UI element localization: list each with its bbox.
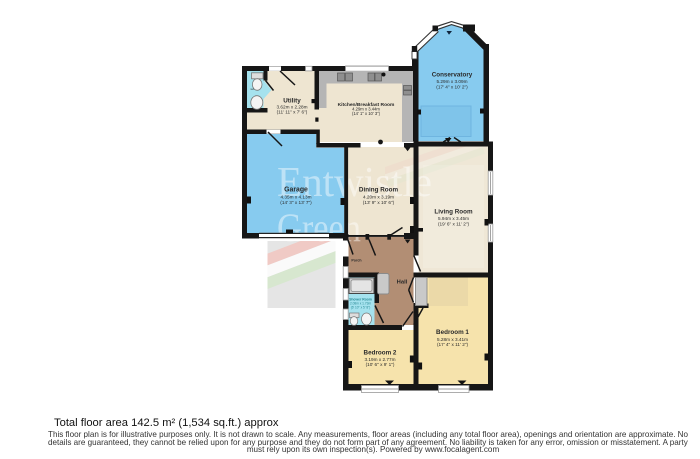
- svg-text:(6' 10" x 5' 8"): (6' 10" x 5' 8"): [351, 306, 371, 310]
- svg-text:Conservatory: Conservatory: [432, 72, 473, 79]
- svg-text:(17' 4" x 11' 2"): (17' 4" x 11' 2"): [437, 342, 469, 347]
- svg-text:Hall: Hall: [397, 280, 408, 286]
- svg-text:Living Room: Living Room: [434, 209, 473, 216]
- svg-text:(13' 9" x 10' 6"): (13' 9" x 10' 6"): [363, 200, 395, 205]
- svg-text:5.29m x 3.09m: 5.29m x 3.09m: [436, 79, 467, 84]
- svg-text:(14' 1" x 10' 3"): (14' 1" x 10' 3"): [352, 111, 381, 116]
- svg-text:(11' 11" x 7' 6"): (11' 11" x 7' 6"): [277, 110, 308, 115]
- svg-text:4.20m x 3.19m: 4.20m x 3.19m: [363, 195, 394, 200]
- svg-text:(17' 4" x 10' 2"): (17' 4" x 10' 2"): [436, 84, 468, 89]
- svg-text:(14' 3" x 13' 7"): (14' 3" x 13' 7"): [280, 200, 312, 205]
- svg-text:Bedroom 2: Bedroom 2: [364, 350, 397, 357]
- svg-text:(10' 6" x 9' 1"): (10' 6" x 9' 1"): [366, 362, 395, 367]
- svg-text:Bedroom 1: Bedroom 1: [436, 329, 469, 336]
- svg-text:(19' 6" x 11' 2"): (19' 6" x 11' 2"): [438, 221, 470, 226]
- svg-text:Porch: Porch: [351, 258, 361, 262]
- svg-text:5.94m x 3.45m: 5.94m x 3.45m: [438, 216, 469, 221]
- svg-text:Utility: Utility: [283, 98, 301, 105]
- svg-text:4.35m x 4.13m: 4.35m x 4.13m: [280, 195, 311, 200]
- svg-text:Garage: Garage: [284, 187, 308, 194]
- svg-text:wc: wc: [251, 87, 255, 91]
- svg-text:Dining Room: Dining Room: [359, 187, 399, 194]
